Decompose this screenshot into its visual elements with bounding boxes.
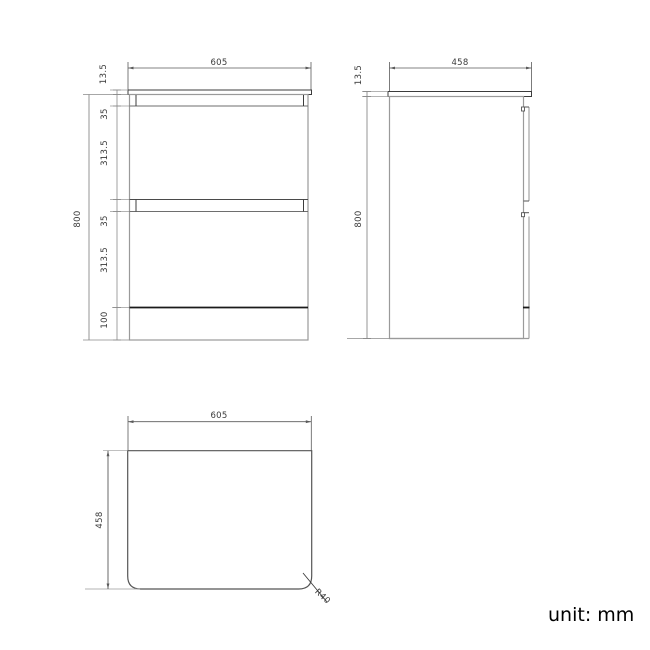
front-cabinet-outline	[130, 95, 309, 341]
side-countertop	[388, 92, 532, 97]
plan-width-label: 605	[210, 412, 227, 421]
side-height-label: 800	[355, 210, 364, 227]
plan-depth-label: 458	[96, 511, 105, 528]
plan-depth-arrow-bottom	[107, 584, 110, 590]
plan-view-drawing	[85, 416, 327, 602]
side-drawer2-pull-notch	[522, 213, 525, 217]
unit-note: unit: mm	[548, 604, 634, 626]
side-view-drawing	[347, 62, 532, 339]
front-drawer1-label: 313.5	[101, 140, 110, 166]
side-top-thickness-label: 13.5	[355, 65, 364, 85]
plan-width-arrow-right	[306, 420, 312, 423]
front-width-arrow-left	[128, 67, 134, 70]
front-plinth-label: 100	[101, 311, 110, 328]
front-drawer2-label: 313.5	[101, 247, 110, 273]
plan-width-dimension	[128, 416, 311, 451]
plan-width-arrow-left	[128, 420, 134, 423]
front-top-thickness-label: 13.5	[100, 64, 109, 84]
side-depth-label: 458	[451, 59, 468, 68]
plan-depth-arrow-top	[107, 451, 110, 457]
front-width-arrow-right	[306, 67, 312, 70]
side-drawer1-pull-notch	[522, 107, 525, 111]
front-top-gap-label: 35	[101, 108, 110, 119]
front-chain-dimension	[113, 90, 121, 340]
front-height-label: 800	[74, 210, 83, 227]
side-depth-arrow-left	[390, 67, 396, 70]
front-width-label: 605	[210, 59, 227, 68]
front-view-drawing	[83, 62, 312, 340]
front-countertop	[128, 90, 312, 95]
side-cabinet-outline	[390, 97, 524, 339]
vanity-technical-drawing: 605 13.5 35 313.5 35 313.5 100 800 458 1…	[0, 0, 650, 650]
side-height-dimension	[363, 92, 371, 339]
side-depth-arrow-right	[526, 67, 532, 70]
drawing-canvas	[0, 0, 650, 650]
front-mid-gap-label: 35	[101, 215, 110, 226]
plan-countertop-outline	[128, 451, 312, 589]
